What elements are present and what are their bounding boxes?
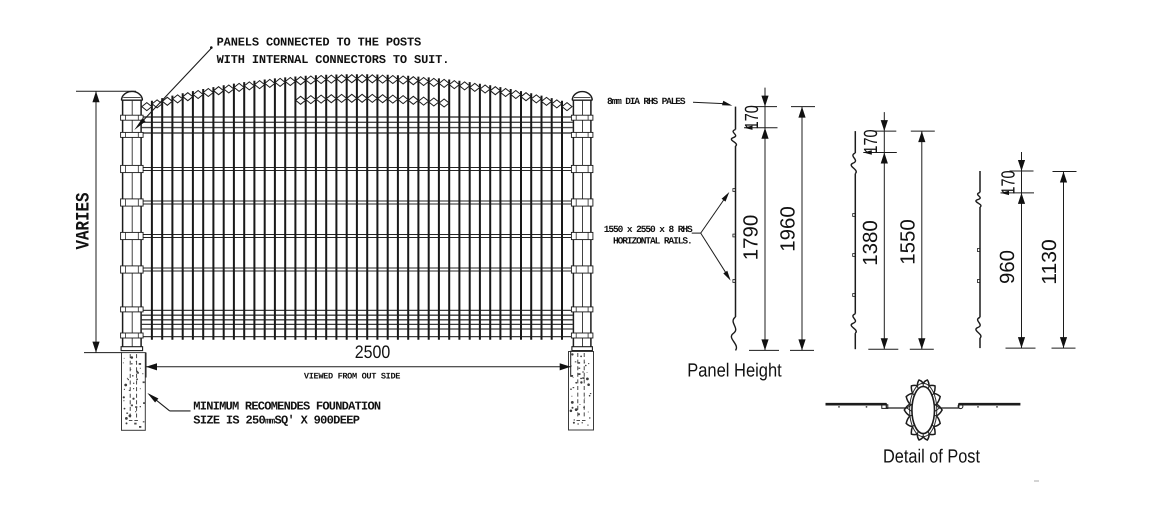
svg-text:Panel Height: Panel Height	[687, 360, 782, 381]
svg-text:2500: 2500	[355, 342, 391, 362]
svg-text:VARIES: VARIES	[72, 193, 94, 250]
svg-text:VIEWED FROM OUT SIDE: VIEWED FROM OUT SIDE	[304, 371, 400, 381]
svg-text:1380: 1380	[859, 220, 882, 266]
svg-text:8mm DIA RHS PALES: 8mm DIA RHS PALES	[607, 96, 686, 107]
svg-text:MINIMUM RECOMENDES FOUNDATION: MINIMUM RECOMENDES FOUNDATION	[193, 400, 381, 414]
svg-text:170: 170	[998, 171, 1019, 195]
svg-text:1550 x 2550 x 8 RHS: 1550 x 2550 x 8 RHS	[604, 224, 693, 235]
svg-text:170: 170	[861, 130, 882, 154]
svg-text:HORIZONTAL RAILS.: HORIZONTAL RAILS.	[613, 235, 692, 246]
svg-text:1130: 1130	[1038, 239, 1061, 285]
svg-text:SIZE IS 250mmSQ' X 900DEEP: SIZE IS 250mmSQ' X 900DEEP	[193, 414, 359, 428]
svg-text:1550: 1550	[896, 219, 919, 265]
svg-text:Detail of Post: Detail of Post	[883, 447, 981, 468]
svg-text:1790: 1790	[740, 215, 763, 261]
svg-text:WITH INTERNAL CONNECTORS TO SU: WITH INTERNAL CONNECTORS TO SUIT.	[217, 53, 450, 67]
svg-text:PANELS CONNECTED TO THE POSTS: PANELS CONNECTED TO THE POSTS	[217, 35, 421, 49]
svg-text:960: 960	[996, 250, 1019, 284]
svg-text:1960: 1960	[777, 206, 800, 252]
svg-text:170: 170	[742, 105, 763, 129]
